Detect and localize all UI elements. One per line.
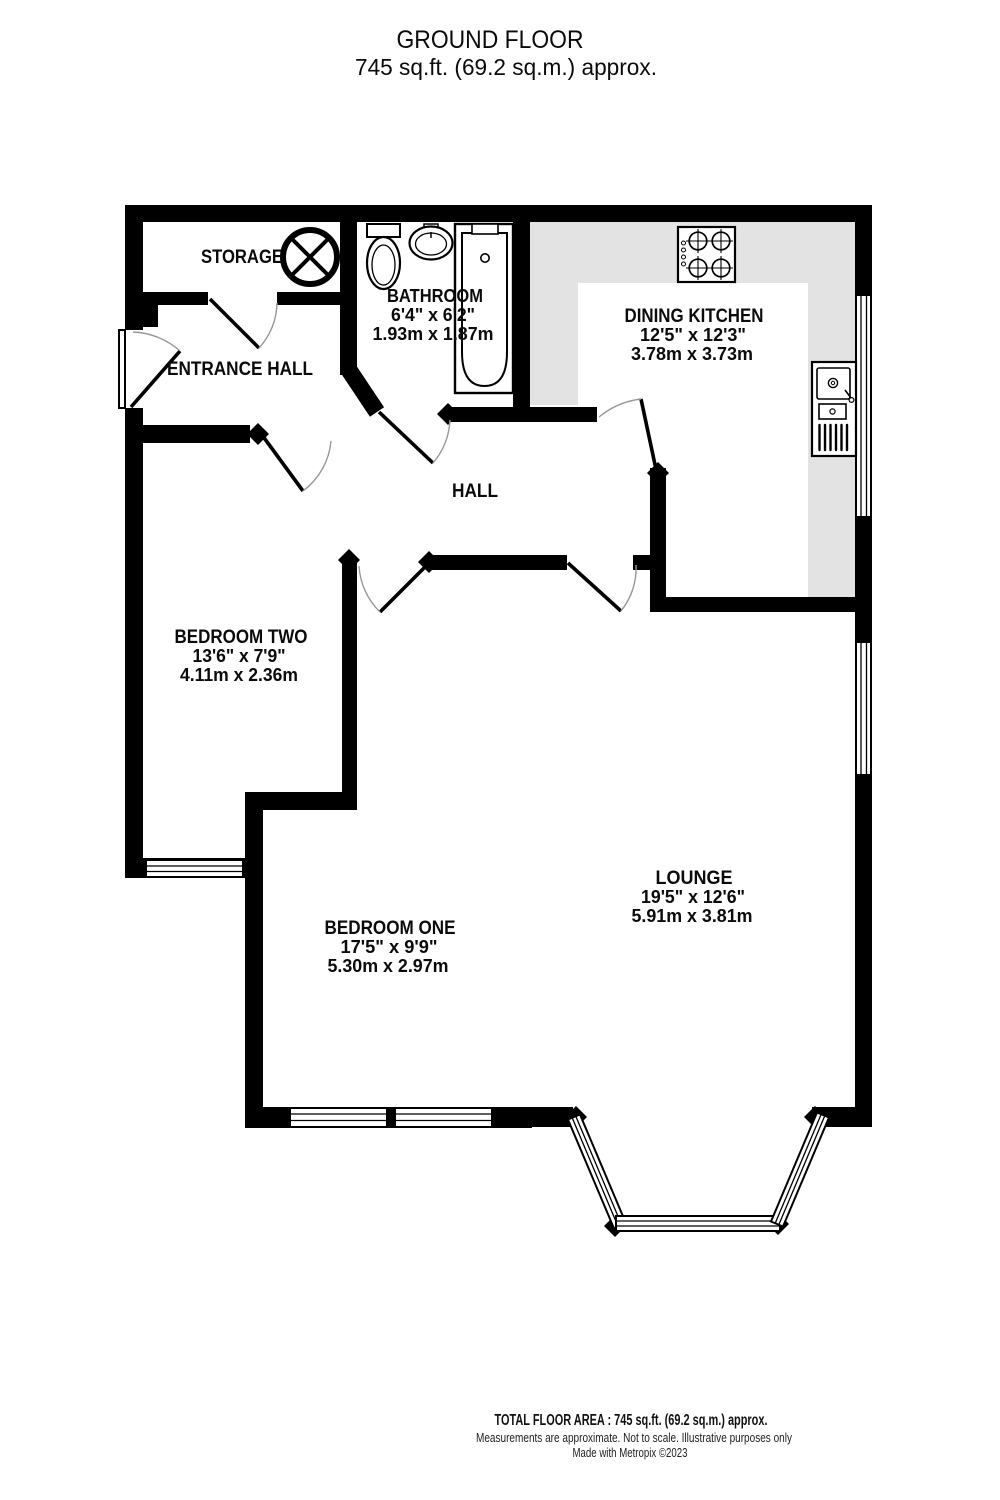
door-kitchen: [599, 399, 657, 474]
window-bedroom-one-right: [395, 1108, 492, 1127]
window-bedroom-two: [146, 860, 243, 877]
hob-icon: [678, 227, 735, 282]
floorplan-page: GROUND FLOOR 745 sq.ft. (69.2 sq.m.) app…: [0, 0, 1000, 1500]
plan-title: GROUND FLOOR: [397, 26, 584, 54]
room-label-storage: STORAGE: [201, 247, 283, 268]
door-bathroom: [379, 412, 450, 463]
kitchen-sink-icon: [812, 362, 856, 456]
room-size-imperial-lounge: 19'5" x 12'6": [641, 887, 745, 907]
room-label-dining-kitchen: DINING KITCHEN: [625, 306, 764, 327]
room-label-bedroom-two: BEDROOM TWO: [175, 627, 308, 648]
room-label-hall: HALL: [452, 481, 498, 502]
door-bedroom-one: [359, 563, 429, 612]
wash-basin-icon: [410, 224, 453, 260]
window-bedroom-one-left: [290, 1108, 387, 1127]
room-size-imperial-bedroom-two: 13'6" x 7'9": [193, 646, 286, 666]
room-label-entrance-hall: ENTRANCE HALL: [167, 359, 313, 380]
room-size-imperial-dining-kitchen: 12'5" x 12'3": [640, 325, 746, 345]
total-floor-area: TOTAL FLOOR AREA : 745 sq.ft. (69.2 sq.m…: [495, 1412, 768, 1429]
room-size-metric-lounge: 5.91m x 3.81m: [632, 906, 753, 926]
window-kitchen-right: [856, 295, 871, 517]
room-size-metric-bedroom-two: 4.11m x 2.36m: [180, 665, 298, 685]
bay-window-lounge: [568, 1113, 829, 1232]
front-door-threshold: [119, 330, 125, 408]
disclaimer-text: Measurements are approximate. Not to sca…: [476, 1430, 792, 1445]
room-size-metric-bathroom: 1.93m x 1.87m: [373, 324, 494, 344]
door-storage: [210, 299, 277, 348]
room-size-metric-dining-kitchen: 3.78m x 3.73m: [631, 344, 753, 364]
plan-subtitle: 745 sq.ft. (69.2 sq.m.) approx.: [355, 54, 657, 80]
hot-water-cylinder-icon: [283, 230, 337, 284]
plan-header: GROUND FLOOR 745 sq.ft. (69.2 sq.m.) app…: [355, 26, 657, 80]
room-label-lounge: LOUNGE: [656, 868, 733, 889]
room-label-bathroom: BATHROOM: [387, 285, 483, 306]
doors: [131, 299, 657, 612]
room-label-bedroom-one: BEDROOM ONE: [325, 918, 456, 939]
room-size-imperial-bathroom: 6'4" x 6'2": [391, 305, 475, 325]
door-lounge: [568, 563, 636, 611]
door-bedroom-two: [262, 435, 331, 491]
window-lounge-right: [856, 642, 871, 775]
floorplan-drawing: GROUND FLOOR 745 sq.ft. (69.2 sq.m.) app…: [0, 0, 1000, 1500]
toilet-icon: [367, 224, 400, 289]
credit-text: Made with Metropix ©2023: [573, 1445, 688, 1460]
room-size-imperial-bedroom-one: 17'5" x 9'9": [341, 937, 438, 957]
plan-footer: TOTAL FLOOR AREA : 745 sq.ft. (69.2 sq.m…: [476, 1412, 792, 1460]
room-size-metric-bedroom-one: 5.30m x 2.97m: [328, 956, 449, 976]
